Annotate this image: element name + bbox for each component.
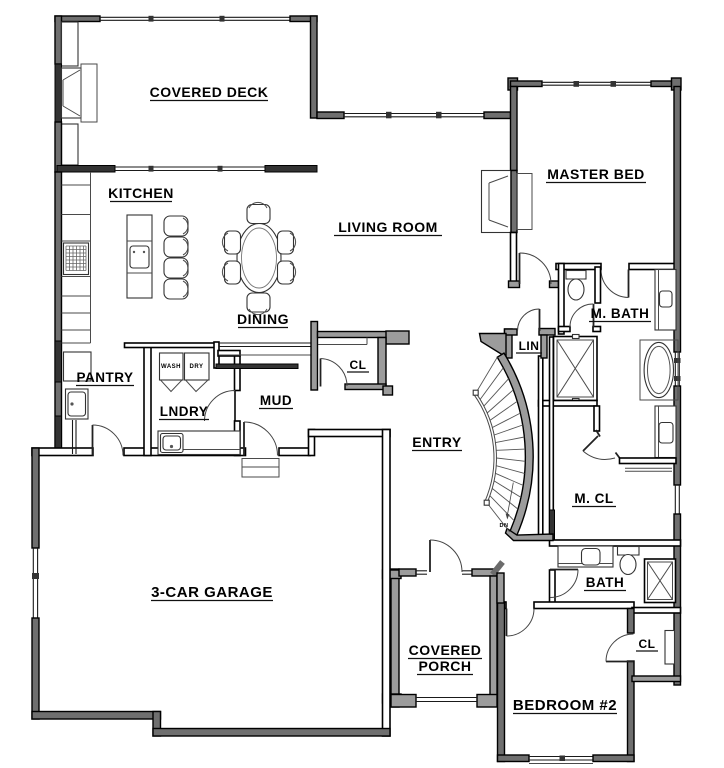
svg-text:DRY: DRY	[190, 364, 204, 370]
svg-text:MASTER BED: MASTER BED	[547, 166, 645, 182]
svg-text:CL: CL	[350, 358, 367, 372]
svg-text:WASH: WASH	[161, 364, 181, 370]
svg-text:BATH: BATH	[586, 575, 625, 590]
svg-text:ENTRY: ENTRY	[412, 434, 462, 450]
svg-text:M. CL: M. CL	[574, 491, 613, 506]
svg-text:LNDRY: LNDRY	[160, 404, 209, 419]
svg-text:LIVING ROOM: LIVING ROOM	[338, 219, 438, 235]
svg-text:DN: DN	[500, 523, 509, 529]
svg-text:MUD: MUD	[260, 393, 292, 408]
svg-text:3-CAR GARAGE: 3-CAR GARAGE	[151, 584, 273, 601]
svg-text:M. BATH: M. BATH	[591, 306, 650, 321]
svg-text:DINING: DINING	[237, 311, 289, 327]
svg-text:PORCH: PORCH	[418, 658, 471, 674]
svg-text:COVERED DECK: COVERED DECK	[150, 84, 269, 100]
svg-text:CL: CL	[639, 637, 656, 651]
svg-text:KITCHEN: KITCHEN	[108, 185, 174, 201]
svg-text:BEDROOM #2: BEDROOM #2	[513, 697, 617, 714]
svg-text:PANTRY: PANTRY	[77, 370, 134, 385]
svg-text:COVERED: COVERED	[409, 642, 482, 658]
svg-text:LIN: LIN	[519, 339, 540, 353]
